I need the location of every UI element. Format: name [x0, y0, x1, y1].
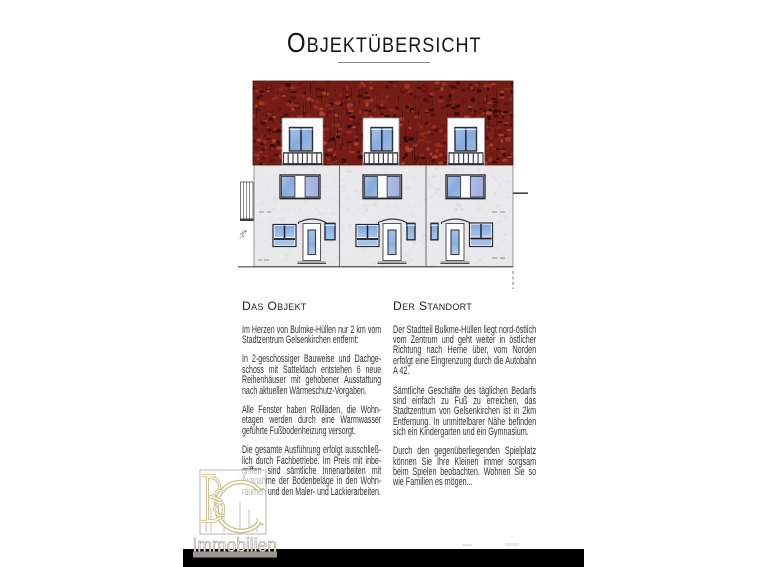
svg-text:Immobilien: Immobilien	[193, 536, 278, 557]
svg-text:~2%: ~2%	[238, 228, 249, 241]
